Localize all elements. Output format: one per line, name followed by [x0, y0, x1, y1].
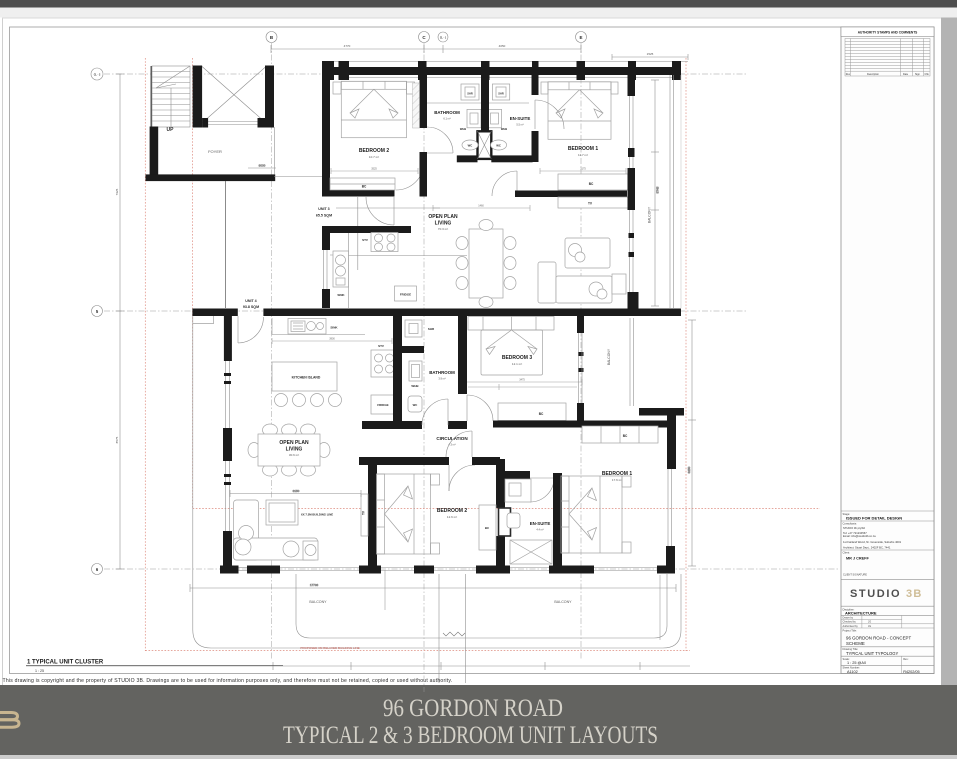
svg-text:WC: WC — [413, 403, 418, 407]
svg-text:1 TYPICAL UNIT CLUSTER: 1 TYPICAL UNIT CLUSTER — [27, 660, 104, 666]
svg-text:UNIT 4: UNIT 4 — [245, 299, 256, 303]
svg-text:3175: 3175 — [580, 168, 586, 171]
svg-text:5745: 5745 — [656, 186, 660, 193]
svg-text:SINK: SINK — [337, 293, 345, 297]
svg-text:65.5 SQM: 65.5 SQM — [316, 214, 332, 218]
svg-text:Drawn by: Drawn by — [843, 616, 854, 619]
svg-text:1 : 25 @A0: 1 : 25 @A0 — [847, 661, 866, 665]
svg-text:EN-SUITE: EN-SUITE — [510, 116, 531, 121]
svg-text:UNIT 3: UNIT 3 — [318, 207, 329, 211]
svg-text:STUDIO 3b pty/ltd: STUDIO 3b pty/ltd — [843, 526, 865, 530]
svg-text:JG: JG — [868, 621, 871, 624]
svg-text:1st Fairland Wend, Nr. Greensi: 1st Fairland Wend, Nr. Greenside, Suburb… — [843, 540, 902, 544]
svg-text:CL - 1: CL - 1 — [440, 37, 447, 39]
svg-text:LIVING: LIVING — [286, 447, 303, 453]
svg-text:BC: BC — [539, 412, 544, 416]
svg-text:UP: UP — [167, 127, 175, 133]
svg-text:KITCHEN ISLAND: KITCHEN ISLAND — [292, 376, 321, 380]
svg-text:R4202/05: R4202/05 — [903, 670, 919, 674]
svg-text:AUTHORITY STAMPS AND COMMENTS: AUTHORITY STAMPS AND COMMENTS — [858, 31, 918, 35]
svg-text:STUDIO: STUDIO — [850, 588, 901, 600]
svg-text:Client:: Client: — [843, 551, 851, 555]
svg-text:1460: 1460 — [478, 205, 484, 208]
svg-text:1 : 25: 1 : 25 — [35, 669, 44, 673]
svg-text:3B: 3B — [906, 588, 922, 600]
svg-text:WHB: WHB — [411, 384, 419, 388]
svg-text:70.3 m²: 70.3 m² — [438, 227, 448, 231]
svg-text:3475: 3475 — [519, 379, 525, 382]
svg-text:WHB: WHB — [501, 127, 507, 131]
svg-text:This drawing is copyright and: This drawing is copyright and the proper… — [3, 678, 453, 684]
svg-text:BEDROOM 2: BEDROOM 2 — [437, 508, 468, 514]
svg-text:1525: 1525 — [647, 52, 654, 56]
svg-text:6.1 m²: 6.1 m² — [443, 117, 450, 121]
svg-text:11.7 m²: 11.7 m² — [578, 153, 588, 157]
svg-text:7925: 7925 — [115, 188, 119, 195]
svg-text:8250: 8250 — [687, 466, 691, 473]
svg-text:SHR: SHR — [498, 92, 504, 96]
svg-text:8575: 8575 — [115, 436, 119, 443]
svg-text:6000: 6000 — [259, 164, 266, 168]
svg-text:SCHEME: SCHEME — [846, 641, 865, 646]
svg-text:FRIDGE: FRIDGE — [377, 403, 388, 407]
svg-text:OPEN PLAN: OPEN PLAN — [428, 214, 458, 220]
svg-text:3525: 3525 — [371, 168, 377, 171]
svg-text:JG: JG — [868, 625, 871, 628]
svg-text:SHR: SHR — [467, 92, 473, 96]
svg-text:BC: BC — [623, 434, 628, 438]
svg-text:BEDROOM 3: BEDROOM 3 — [502, 355, 533, 361]
svg-text:LIVING: LIVING — [435, 221, 452, 227]
svg-text:TYPICAL 2 & 3 BEDROOM UNIT LAY: TYPICAL 2 & 3 BEDROOM UNIT LAYOUTS — [283, 722, 658, 749]
svg-text:ISSUED FOR DETAIL DESIGN: ISSUED FOR DETAIL DESIGN — [846, 515, 902, 520]
svg-text:96 GORDON ROAD - CONCEPT: 96 GORDON ROAD - CONCEPT — [846, 635, 911, 640]
svg-text:4050: 4050 — [499, 44, 506, 48]
svg-text:ARCHITECTURE: ARCHITECTURE — [845, 610, 877, 615]
svg-text:3900: 3900 — [329, 338, 335, 341]
svg-text:Rev:: Rev: — [903, 657, 909, 661]
svg-text:WC: WC — [468, 144, 473, 148]
svg-text:WC: WC — [496, 144, 501, 148]
svg-text:Date: Date — [903, 73, 909, 76]
svg-text:BALCONY: BALCONY — [309, 600, 327, 604]
svg-text:Scale:: Scale: — [843, 657, 850, 661]
svg-text:STV: STV — [362, 238, 368, 242]
svg-text:E: E — [579, 35, 582, 40]
svg-text:FOYER: FOYER — [208, 149, 222, 154]
svg-text:4.4 m²: 4.4 m² — [536, 528, 543, 532]
svg-text:CLIENT SIGNATURE: CLIENT SIGNATURE — [843, 574, 867, 577]
svg-text:A1102: A1102 — [847, 670, 858, 674]
svg-text:Architect: Stuart Dept., 2402F: Architect: Stuart Dept., 2402F BC, 7441 — [843, 546, 891, 550]
svg-text:10.7 m²: 10.7 m² — [369, 155, 379, 159]
svg-text:BATHROOM: BATHROOM — [429, 370, 455, 375]
svg-text:Sign: Sign — [915, 73, 920, 76]
svg-text:Checked by: Checked by — [843, 621, 857, 624]
svg-text:BEDROOM 2: BEDROOM 2 — [359, 148, 390, 154]
svg-text:BATHROOM: BATHROOM — [434, 110, 460, 115]
svg-text:96 GORDON ROAD: 96 GORDON ROAD — [383, 695, 563, 722]
svg-text:4770: 4770 — [344, 44, 351, 48]
svg-text:BEDROOM 1: BEDROOM 1 — [568, 146, 599, 152]
svg-text:Authorised by: Authorised by — [843, 625, 859, 628]
svg-text:BC: BC — [589, 182, 594, 186]
svg-text:BALCONY: BALCONY — [648, 206, 652, 223]
svg-text:30.6 m²: 30.6 m² — [289, 453, 299, 457]
svg-text:TYPICAL UNIT TYPOLOGY: TYPICAL UNIT TYPOLOGY — [846, 651, 898, 656]
svg-text:12.6 m²: 12.6 m² — [447, 515, 457, 519]
svg-text:93.8 SQM: 93.8 SQM — [243, 305, 259, 309]
svg-text:MR J CREFF: MR J CREFF — [846, 557, 869, 561]
svg-text:WHB: WHB — [460, 127, 466, 131]
svg-text:BALCONY: BALCONY — [554, 600, 572, 604]
svg-text:17736: 17736 — [310, 583, 319, 587]
svg-text:12.1 m²: 12.1 m² — [512, 362, 522, 366]
svg-text:FRIDGE: FRIDGE — [400, 293, 411, 297]
svg-text:SINK: SINK — [330, 326, 338, 330]
svg-text:BALCONY: BALCONY — [607, 348, 611, 365]
svg-text:BC: BC — [362, 185, 367, 189]
svg-text:XX 7.5M BUILDING LINE: XX 7.5M BUILDING LINE — [301, 513, 333, 517]
svg-text:EN-SUITE: EN-SUITE — [530, 521, 551, 526]
svg-text:Description: Description — [867, 73, 880, 76]
svg-text:5.5 m²: 5.5 m² — [516, 123, 523, 127]
svg-text:STV: STV — [378, 344, 384, 348]
svg-text:Email: info@studio3b.co.za: Email: info@studio3b.co.za — [843, 534, 876, 538]
svg-text:CL - 2: CL - 2 — [94, 73, 101, 76]
svg-text:OPEN PLAN: OPEN PLAN — [279, 440, 309, 446]
svg-text:SHR: SHR — [428, 327, 435, 331]
svg-text:3.9 m²: 3.9 m² — [438, 377, 445, 381]
svg-text:Project Title:: Project Title: — [843, 629, 858, 633]
svg-text:6150: 6150 — [293, 489, 300, 493]
svg-text:17.6 m²: 17.6 m² — [612, 478, 622, 482]
svg-text:Consultants:: Consultants: — [843, 522, 858, 526]
